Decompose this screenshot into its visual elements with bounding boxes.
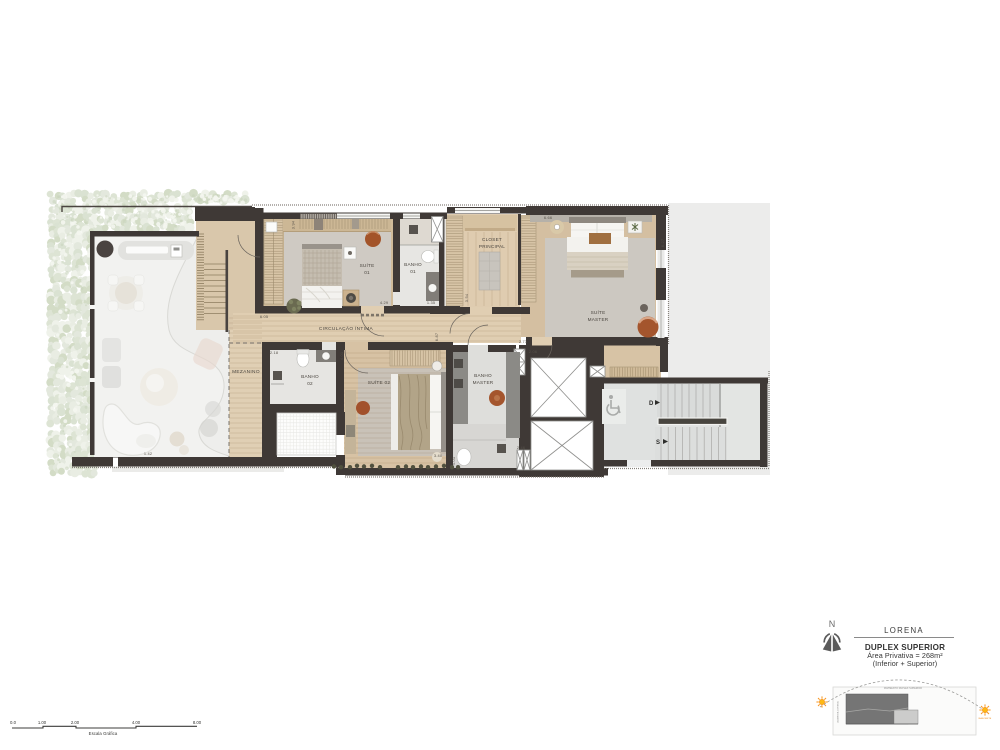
svg-text:3.54: 3.54 [464, 293, 469, 302]
svg-text:2.00: 2.00 [71, 720, 80, 725]
svg-text:BANHO: BANHO [301, 374, 319, 379]
svg-text:0.0: 0.0 [10, 720, 17, 725]
svg-text:02: 02 [307, 381, 313, 386]
svg-text:1.42: 1.42 [144, 451, 152, 456]
svg-text:1.00: 1.00 [38, 720, 47, 725]
svg-text:4.01: 4.01 [451, 457, 456, 465]
svg-text:MEZANINO: MEZANINO [232, 369, 260, 375]
svg-text:6.05: 6.05 [260, 314, 268, 319]
svg-text:Escala Gráfica: Escala Gráfica [89, 731, 118, 736]
svg-text:CIRCULAÇÃO ÍNTIMA: CIRCULAÇÃO ÍNTIMA [319, 325, 374, 332]
svg-text:BANHO: BANHO [474, 373, 492, 378]
svg-text:CLOSET: CLOSET [482, 237, 502, 242]
svg-text:BANHO: BANHO [404, 262, 422, 267]
svg-text:6.66: 6.66 [544, 215, 552, 220]
svg-text:4.00: 4.00 [132, 720, 141, 725]
svg-text:2.18: 2.18 [270, 350, 278, 355]
svg-text:S: S [656, 440, 660, 446]
svg-text:(Inferior + Superior): (Inferior + Superior) [873, 659, 938, 668]
svg-text:2.73: 2.73 [519, 339, 527, 344]
svg-text:01: 01 [410, 269, 416, 274]
svg-text:2.46: 2.46 [517, 445, 525, 450]
svg-text:MASTER: MASTER [588, 317, 609, 322]
svg-text:LORENA: LORENA [884, 626, 924, 635]
svg-text:ALAMEDA LORENA: ALAMEDA LORENA [837, 701, 840, 723]
svg-text:SUÍTE: SUÍTE [591, 309, 606, 315]
svg-text:SUÍTE: SUÍTE [360, 262, 375, 268]
svg-text:PRINCIPAL: PRINCIPAL [479, 244, 505, 249]
svg-text:6.87: 6.87 [434, 333, 439, 341]
svg-text:01: 01 [364, 270, 370, 275]
svg-text:2.06: 2.06 [529, 349, 537, 354]
svg-text:3.40: 3.40 [434, 453, 443, 458]
svg-text:3.94: 3.94 [291, 220, 296, 229]
svg-text:PAVIMENTO DUPLEX SUPERIOR: PAVIMENTO DUPLEX SUPERIOR [884, 687, 922, 690]
svg-text:D: D [649, 401, 654, 407]
svg-text:4.01: 4.01 [339, 352, 344, 360]
svg-text:SUÍTE 02: SUÍTE 02 [368, 379, 391, 386]
svg-text:NASCENTE: NASCENTE [979, 717, 992, 720]
svg-text:1.35: 1.35 [427, 300, 435, 305]
svg-text:N: N [829, 619, 836, 629]
svg-text:4.29: 4.29 [380, 300, 388, 305]
svg-text:8.27: 8.27 [660, 239, 665, 247]
svg-text:MASTER: MASTER [473, 380, 494, 385]
svg-text:8.00: 8.00 [193, 720, 202, 725]
